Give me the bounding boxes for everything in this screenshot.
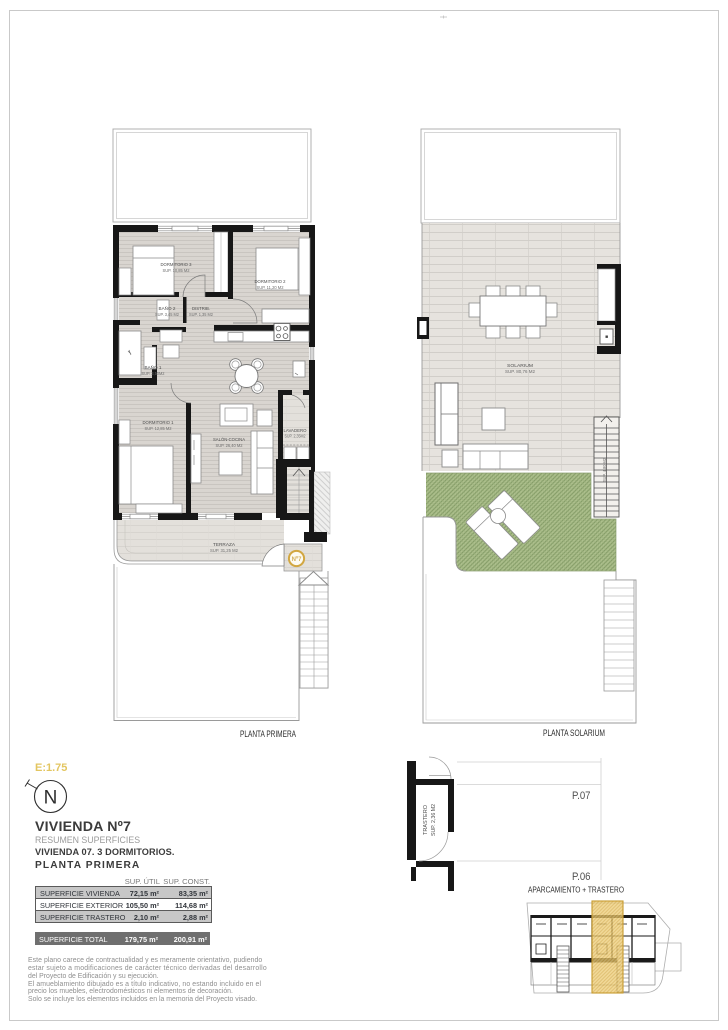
svg-text:BAÑO 2: BAÑO 2 [159,305,176,311]
svg-text:Nº7: Nº7 [292,557,303,563]
svg-text:SUP. 3,50M2: SUP. 3,50M2 [142,371,166,376]
svg-text:SUP. 26,40 M2: SUP. 26,40 M2 [216,443,244,448]
svg-text:SUP. 3,45 M2: SUP. 3,45 M2 [155,312,179,317]
svg-text:N: N [44,788,58,809]
svg-text:SUP. 1,35 M2: SUP. 1,35 M2 [189,312,213,317]
svg-text:SUP. 11,20 M2: SUP. 11,20 M2 [257,285,285,290]
svg-text:BAÑO 1: BAÑO 1 [145,364,162,370]
svg-text:P.07: P.07 [572,790,591,802]
svg-text:TERRAZA: TERRAZA [213,542,236,547]
svg-text:LAVADERO: LAVADERO [284,428,308,433]
svg-text:SUP. 10,85 M2: SUP. 10,85 M2 [163,268,191,273]
svg-text:TRASTERO: TRASTERO [423,805,429,835]
svg-text:SUP. 2,35M2: SUP. 2,35M2 [285,434,307,439]
svg-text:DISTRIB.: DISTRIB. [192,306,210,311]
svg-text:SUP. 80,76 M2: SUP. 80,76 M2 [505,369,536,374]
svg-text:SUP. 12,85 M2: SUP. 12,85 M2 [145,426,173,431]
svg-text:P.06: P.06 [572,871,591,883]
svg-text:PLANTA SOLARIUM: PLANTA SOLARIUM [543,728,605,738]
svg-text:APARCAMIENTO + TRASTERO: APARCAMIENTO + TRASTERO [528,886,624,895]
svg-text:SUP. 2,36 M2: SUP. 2,36 M2 [431,804,437,836]
svg-text:SALÓN-COCINA: SALÓN-COCINA [213,436,246,443]
svg-text:PLANTA PRIMERA: PLANTA PRIMERA [240,729,296,739]
svg-text:SUP. 4,80 M2: SUP. 4,80 M2 [602,457,607,482]
svg-text:SUP. 31,25 M2: SUP. 31,25 M2 [210,548,239,553]
